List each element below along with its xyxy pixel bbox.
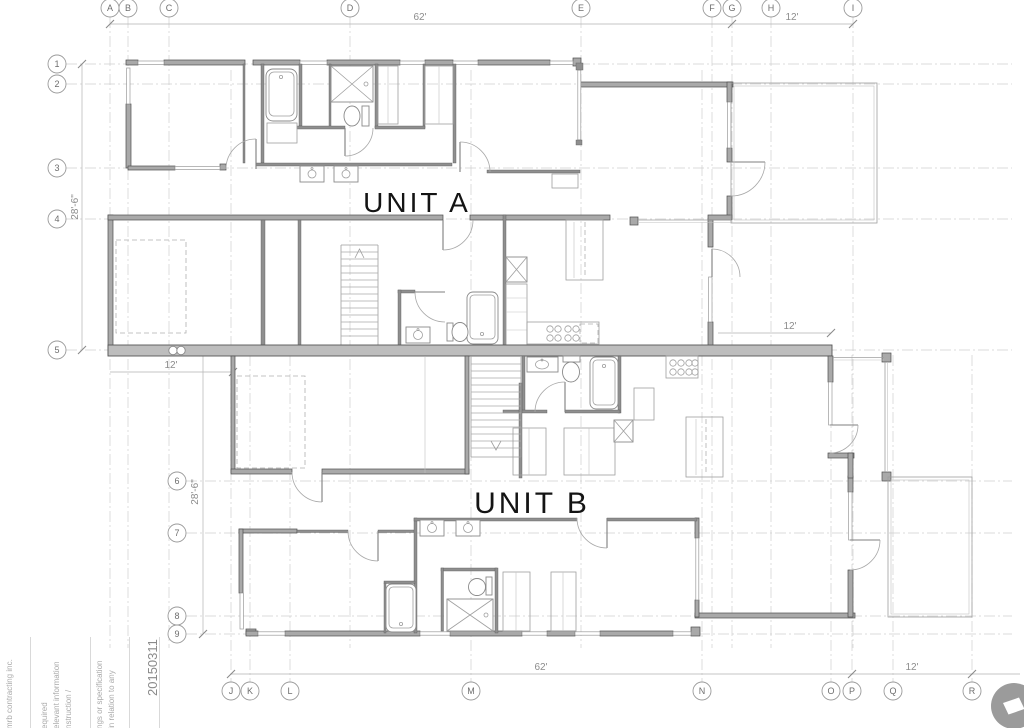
grid-bubble-g: G bbox=[728, 3, 735, 13]
floor-plan-drawing: 62' 12' 28'-6" 28'-6" 12' 12' 62' 12' bbox=[0, 0, 1024, 728]
grid-bubble-l: L bbox=[287, 686, 292, 696]
grid-bubble-e: E bbox=[578, 3, 584, 13]
unit-b-label: UNIT B bbox=[474, 487, 590, 520]
unit-a-bath2-fixtures bbox=[406, 292, 498, 344]
grid-bubble-6: 6 bbox=[174, 476, 179, 486]
grid-bubble-q: Q bbox=[889, 686, 896, 696]
dim-bottom-right-width: 12' bbox=[905, 662, 918, 673]
grid-bubble-d: D bbox=[347, 3, 354, 13]
unit-a-stairs bbox=[341, 245, 378, 347]
grid-bubble-2: 2 bbox=[54, 79, 59, 89]
grid-bubble-j: J bbox=[229, 686, 234, 696]
dim-lower-height: 28'-6" bbox=[190, 479, 201, 505]
title-block-note-2: elevant information bbox=[52, 661, 61, 728]
dim-top-width: 62' bbox=[413, 12, 426, 23]
title-block-note-1: equired bbox=[40, 702, 49, 728]
unit-a-vanity-sinks bbox=[300, 166, 358, 182]
grid-bubble-f: F bbox=[709, 3, 715, 13]
grid-bubble-h: H bbox=[768, 3, 775, 13]
floor-plan-sheet: 62' 12' 28'-6" 28'-6" 12' 12' 62' 12' bbox=[0, 0, 1024, 728]
grid-bubble-i: I bbox=[852, 3, 855, 13]
grid-bubble-5: 5 bbox=[54, 345, 59, 355]
unit-a-toilet-icon bbox=[344, 106, 369, 126]
grid-bubble-m: M bbox=[467, 686, 475, 696]
grid-bubble-k: K bbox=[247, 686, 253, 696]
title-block-company: mrb contracting inc. bbox=[5, 659, 14, 728]
grid-bubble-o: O bbox=[827, 686, 834, 696]
unit-b-bath-fixtures bbox=[527, 356, 618, 409]
logo-button[interactable] bbox=[991, 683, 1024, 728]
grid-bubble-3: 3 bbox=[54, 163, 59, 173]
dim-bottom-width: 62' bbox=[534, 662, 547, 673]
unit-b-plan: UNIT B bbox=[231, 353, 972, 636]
unit-a-kitchen bbox=[506, 220, 603, 345]
title-block: mrb contracting inc. equired elevant inf… bbox=[5, 637, 160, 728]
party-wall bbox=[108, 345, 832, 356]
dim-upper-height: 28'-6" bbox=[70, 194, 81, 220]
grid-bubble-7: 7 bbox=[174, 528, 179, 538]
title-block-note-3: nstruction / bbox=[64, 689, 73, 728]
grid-bubble-1: 1 bbox=[54, 59, 59, 69]
unit-b-lower-bath-fixtures bbox=[386, 520, 493, 632]
title-block-note-5: in relation to any bbox=[107, 670, 116, 728]
title-block-date: 20150311 bbox=[145, 639, 160, 696]
grid-bubble-c: C bbox=[166, 3, 173, 13]
grid-bubble-p: P bbox=[849, 686, 855, 696]
unit-a-shower-icon bbox=[331, 66, 373, 102]
unit-a-deck bbox=[630, 83, 877, 225]
dim-top-right-width: 12' bbox=[785, 12, 798, 23]
grid-bubble-4: 4 bbox=[54, 214, 59, 224]
unit-b-deck bbox=[833, 358, 972, 618]
title-block-note-4: ngs or specification bbox=[95, 661, 104, 728]
unit-b-stairs bbox=[425, 357, 521, 473]
unit-a-garage-stall bbox=[116, 240, 186, 333]
grid-bubble-9: 9 bbox=[174, 629, 179, 639]
grid-bubble-a: A bbox=[107, 3, 113, 13]
unit-a-label: UNIT A bbox=[363, 187, 471, 218]
dim-unit-b-left: 12' bbox=[164, 360, 177, 371]
unit-a-bathtub-icon bbox=[266, 69, 297, 121]
grid-bubble-r: R bbox=[969, 686, 976, 696]
grid-bubble-n: N bbox=[699, 686, 706, 696]
unit-a-plan: UNIT A bbox=[108, 58, 877, 355]
dim-unit-a-right: 12' bbox=[783, 321, 796, 332]
unit-b-garage-stall bbox=[237, 376, 305, 468]
unit-b-kitchen bbox=[614, 356, 723, 477]
grid-bubble-8: 8 bbox=[174, 611, 179, 621]
grid-bubble-b: B bbox=[125, 3, 131, 13]
